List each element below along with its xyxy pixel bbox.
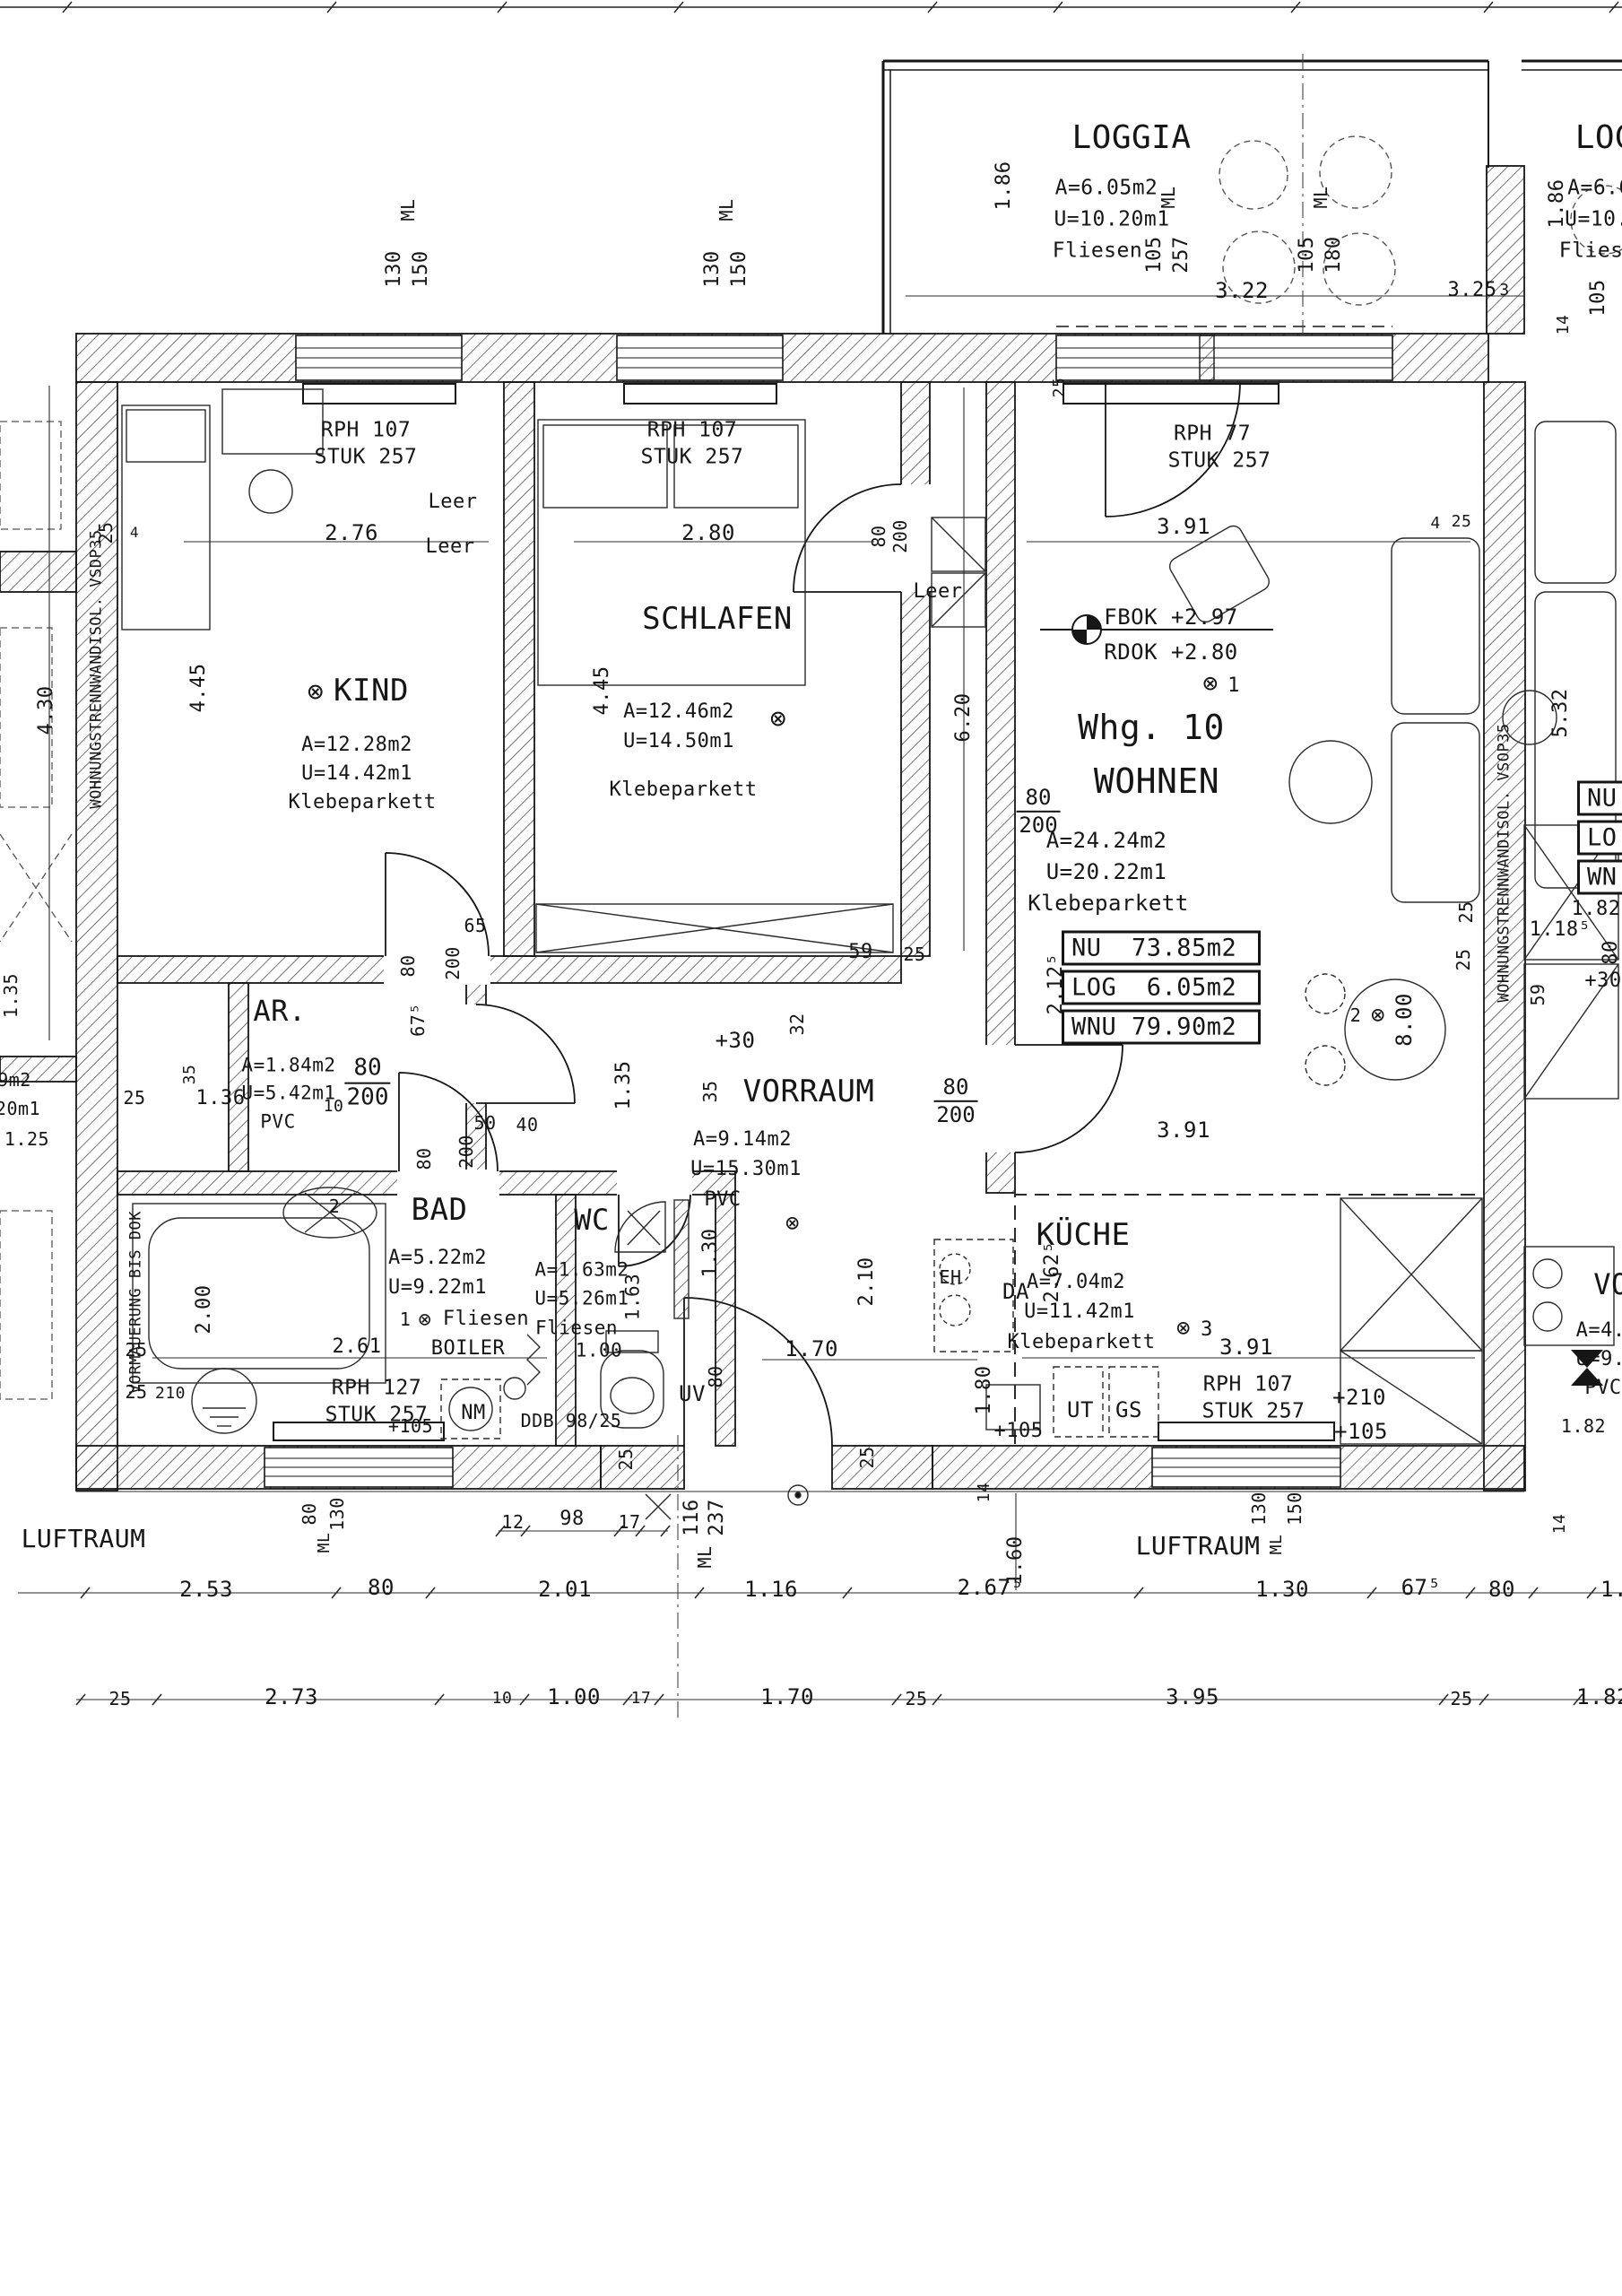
wohnen-title: WOHNEN — [1094, 764, 1219, 798]
dim-136: 1.36 — [196, 1089, 246, 1109]
row1-675: 67⁵ — [1401, 1577, 1442, 1598]
kind-symbol-icon: ⊗ — [308, 679, 325, 706]
wohnen-symbol-num: 1 — [1227, 676, 1240, 696]
dim-25-corr: 25 — [903, 945, 925, 963]
kind-title: KIND — [334, 675, 409, 706]
ar-title: AR. — [253, 996, 306, 1025]
dim-135-vert: 1.35 — [614, 1061, 634, 1110]
leftfrag-m2: 9m2 — [0, 1071, 31, 1089]
loggia2-perimeter: U=10. — [1565, 210, 1622, 230]
bad-area: A=5.22m2 — [388, 1248, 487, 1268]
dim-17: 17 — [618, 1513, 640, 1531]
schlafen-perimeter: U=14.50m1 — [623, 732, 734, 752]
dim-261: 2.61 — [333, 1337, 382, 1357]
dim-200-schlafen: 200 — [891, 519, 909, 553]
loggia-perimeter: U=10.20m1 — [1054, 210, 1169, 230]
row1-116: 1.16 — [744, 1578, 798, 1600]
wohnen-floor: Klebeparkett — [1028, 892, 1188, 914]
dim-2625: 2.62⁵ — [1043, 1241, 1063, 1303]
vorraum2-frag-floor: PVC — [1584, 1378, 1621, 1398]
dim-80-right: 80 — [1601, 940, 1621, 965]
win-schlafen-ml: ML — [717, 198, 735, 221]
leftfrag-125: 1.25 — [4, 1130, 49, 1148]
floorplan-sheet: ⊗KINDA=12.28m2U=14.42m1KlebeparkettSCHLA… — [0, 0, 1622, 2296]
leer-label-2: Leer — [426, 537, 475, 557]
dim-186-right: 1.86 — [1548, 179, 1567, 229]
vorraum2-frag-area: A=4.9 — [1576, 1321, 1622, 1341]
dim-200-ar2: 200 — [444, 946, 462, 980]
dim-675-ar: 67⁵ — [409, 1003, 427, 1037]
loggia2-floor: Fliesen — [1559, 241, 1622, 262]
door-loggia-w: 105 — [1145, 236, 1165, 273]
level-105-kueche-b: +105 — [1334, 1421, 1388, 1442]
dim-391-kueche: 3.91 — [1219, 1336, 1273, 1358]
row2-273: 2.73 — [265, 1686, 318, 1708]
dim-59: 59 — [848, 943, 873, 962]
eh-label: EH — [939, 1268, 961, 1286]
dim-532: 5.32 — [1551, 689, 1571, 738]
bad-symbol-icon: ⊗ — [419, 1309, 432, 1330]
loggia-floor: Fliesen — [1053, 241, 1142, 262]
win-loggia-ml: ML — [1312, 186, 1330, 208]
dim-3: 3 — [1499, 283, 1509, 299]
schlafen-symbol-icon: ⊗ — [770, 706, 787, 733]
bad-perimeter: U=9.22m1 — [388, 1278, 487, 1298]
dim-182-right: 1.82 — [1572, 900, 1621, 919]
row1-80a: 80 — [368, 1577, 395, 1598]
win-bottomleft-ml: ML — [317, 1533, 333, 1553]
leftfrag-135: 1.35 — [2, 973, 20, 1018]
wohnen-rdok: RDOK +2.80 — [1104, 641, 1238, 663]
dim-170: 1.70 — [785, 1338, 838, 1360]
schlafen-title: SCHLAFEN — [642, 604, 793, 634]
kueche-symbol-icon: ⊗ — [1176, 1317, 1191, 1340]
door-dim-vorraum: 80200 — [934, 1076, 978, 1126]
dim-100-wc: 1.00 — [576, 1342, 623, 1361]
leer-label-1: Leer — [429, 492, 478, 512]
vorraum-title: VORRAUM — [743, 1076, 875, 1107]
win-bottomleft-w: 80 — [300, 1502, 318, 1525]
dim-325: 3.25 — [1448, 281, 1497, 300]
kind-area: A=12.28m2 — [301, 735, 412, 755]
schlafen-floor: Klebeparkett — [610, 780, 758, 800]
level-105-kueche-a: +105 — [994, 1422, 1044, 1441]
kueche-floor: Klebeparkett — [1008, 1333, 1156, 1352]
dim-1185-right: 1.18⁵ — [1530, 920, 1592, 940]
level-210-kueche: +210 — [1332, 1387, 1386, 1408]
wall-text-right: WOHNUNGSTRENNWANDISOL. VSOP35 — [1497, 723, 1513, 1002]
vorraum2-frag-title: VO — [1593, 1270, 1622, 1299]
win-bottomright-h: 150 — [1286, 1492, 1304, 1526]
wc-perimeter: U=5.26m1 — [534, 1290, 629, 1309]
bad-floor: Fliesen — [443, 1309, 529, 1329]
dim-25-r1: 25 — [1457, 900, 1475, 923]
wc-area: A=1.63m2 — [534, 1261, 629, 1280]
dim-10-ar: 10 — [324, 1099, 344, 1115]
level-105-bad: +105 — [388, 1417, 433, 1435]
vorraum-symbol-icon: ⊗ — [785, 1212, 800, 1235]
dim-391-wohnen: 3.91 — [1157, 516, 1210, 537]
dim-186-left: 1.86 — [994, 161, 1014, 211]
vorraum-area: A=9.14m2 — [693, 1130, 792, 1150]
dim-130-vorraum: 1.30 — [701, 1229, 721, 1278]
row1-130: 1.30 — [1255, 1578, 1309, 1600]
door-loggia-ml: ML — [1159, 186, 1177, 208]
dim-14-b: 14 — [1552, 1514, 1568, 1535]
vorraum2-frag-perimeter: U=9.3 — [1576, 1350, 1622, 1370]
rph-kind: RPH 107 — [321, 421, 411, 441]
vorraum-floor: PVC — [704, 1190, 741, 1210]
loggia2-title: LOG — [1575, 122, 1622, 154]
win-right-14: 14 — [1556, 315, 1572, 335]
dim-4-w: 4 — [1430, 516, 1440, 532]
row2-182: 1.82 — [1576, 1686, 1622, 1708]
area-table-frag-wn: WN — [1577, 860, 1622, 895]
row2-25c: 25 — [1450, 1690, 1472, 1708]
nm-label: NM — [461, 1404, 486, 1423]
dim-280: 2.80 — [681, 522, 735, 544]
win-loggia-h: 180 — [1324, 236, 1344, 273]
loggia-title: LOGGIA — [1071, 122, 1191, 154]
stuk-schlafen: STUK 257 — [641, 448, 744, 468]
wc-floor: Fliesen — [535, 1319, 618, 1338]
win-loggia-w: 105 — [1297, 236, 1317, 273]
area-table-frag-lo: LO — [1577, 821, 1622, 856]
bad-symbol-num: 1 — [400, 1310, 412, 1328]
win-bottomleft-h: 130 — [328, 1497, 346, 1531]
wohnen-fbok: FBOK +2.97 — [1104, 606, 1238, 628]
wc-title: WC — [574, 1205, 610, 1234]
dim-65: 65 — [464, 917, 486, 935]
dim-2-bad: 2 — [329, 1197, 341, 1215]
rph-wohnen: RPH 77 — [1174, 424, 1251, 445]
wall-text-left2: VORMAUERUNG BIS DOK — [129, 1211, 144, 1394]
dining-symbol-icon: ⊗ — [1371, 1004, 1385, 1027]
row1-cut: 1. — [1600, 1578, 1622, 1600]
rph-bad: RPH 127 — [332, 1378, 421, 1399]
row2-25b: 25 — [905, 1690, 927, 1708]
dim-200-baddoor: 200 — [457, 1135, 475, 1169]
win-bottomright-w: 130 — [1250, 1492, 1268, 1526]
door-dim-ar: 80200 — [344, 1057, 390, 1111]
win-kind-h: 150 — [412, 250, 431, 287]
row1-253: 2.53 — [179, 1578, 233, 1600]
ut-label: UT — [1067, 1399, 1094, 1421]
wall-text-left: WOHNUNGSTRENNWANDISOL. VSDP35 — [90, 529, 105, 808]
wohnen-perimeter: U=20.22m1 — [1046, 861, 1167, 883]
dim-210-bad: 210 — [155, 1386, 186, 1402]
dim-59-right: 59 — [1529, 983, 1547, 1005]
gs-label: GS — [1115, 1399, 1142, 1421]
door-dim-wohnen: 80200 — [1017, 787, 1061, 837]
stuk-kind: STUK 257 — [315, 448, 418, 468]
dim-25-w1: 25 — [1052, 378, 1068, 398]
dim-80-ar2: 80 — [399, 954, 417, 977]
door-entry-w: 116 — [682, 1499, 702, 1535]
dim-276: 2.76 — [325, 522, 378, 544]
dim-35-ar: 35 — [182, 1065, 198, 1085]
ar-floor: PVC — [260, 1113, 295, 1132]
row2-100: 1.00 — [547, 1686, 601, 1708]
dim-163-wc: 1.63 — [624, 1274, 643, 1321]
leer-label-3: Leer — [914, 582, 963, 602]
vorraum-perimeter: U=15.30m1 — [690, 1160, 802, 1179]
win-right-105: 105 — [1589, 279, 1609, 316]
row2-25a: 25 — [108, 1690, 131, 1708]
area-table-nu: NU 73.85m2 — [1062, 931, 1261, 966]
dim-80-entry: 80 — [707, 1365, 724, 1387]
dim-200-bad: 2.00 — [195, 1285, 214, 1335]
schlafen-area: A=12.46m2 — [623, 702, 734, 722]
ar-perimeter: U=5.42m1 — [241, 1084, 335, 1103]
dim-430: 4.30 — [37, 686, 56, 735]
dim-80-baddoor: 80 — [415, 1147, 433, 1170]
win-schlafen-h: 150 — [730, 250, 750, 287]
dim-25-r2: 25 — [1454, 948, 1472, 970]
rph-kueche: RPH 107 — [1203, 1375, 1293, 1396]
dim-180-kueche: 1.80 — [975, 1366, 994, 1415]
row2-17: 17 — [631, 1691, 652, 1707]
area-table-log: LOG 6.05m2 — [1062, 970, 1261, 1005]
row2-395: 3.95 — [1166, 1686, 1219, 1708]
dim-800: 8.00 — [1393, 993, 1415, 1047]
win-kind-ml: ML — [399, 198, 417, 221]
dim-98: 98 — [559, 1509, 585, 1529]
loggia2-area: A=6.0 — [1567, 178, 1622, 199]
area-table-frag-nu: NU — [1577, 781, 1622, 816]
dim-80-schlafen: 80 — [870, 525, 888, 547]
dim-35-vert: 35 — [701, 1080, 719, 1102]
dim-32: 32 — [788, 1013, 806, 1035]
door-entry-ml: ML — [696, 1545, 714, 1568]
rph-schlafen: RPH 107 — [647, 421, 737, 441]
uv-label: UV — [679, 1383, 706, 1405]
loggia-area: A=6.05m2 — [1055, 178, 1158, 199]
dim-2125: 2.12⁵ — [1046, 953, 1066, 1015]
dim-25-v2: 25 — [617, 1448, 635, 1470]
dim-25-v3: 25 — [858, 1446, 876, 1468]
dim-25-w2: 25 — [1452, 514, 1472, 530]
dim-322: 3.22 — [1215, 280, 1269, 301]
stuk-kueche: STUK 257 — [1202, 1402, 1305, 1422]
dim-445-kind: 4.45 — [189, 664, 209, 713]
win-kind-w: 130 — [385, 250, 404, 287]
area-table-wnu: WNU 79.90m2 — [1062, 1010, 1261, 1045]
dim-14-a: 14 — [976, 1483, 993, 1503]
ar-area: A=1.84m2 — [241, 1057, 335, 1075]
kind-floor: Klebeparkett — [289, 793, 437, 813]
labels-layer: ⊗KINDA=12.28m2U=14.42m1KlebeparkettSCHLA… — [0, 0, 1622, 2296]
win-bottomright-ml: ML — [1269, 1535, 1285, 1555]
level-30-vorraum: +30 — [716, 1030, 756, 1051]
win-schlafen-w: 130 — [703, 250, 723, 287]
dining-num: 2 — [1350, 1006, 1362, 1024]
row2-10: 10 — [492, 1691, 513, 1707]
dim-391-wohnen-b: 3.91 — [1157, 1119, 1210, 1141]
leftfrag-m1: 20m1 — [0, 1100, 40, 1118]
dim-4-topleft: 4 — [130, 526, 139, 540]
da-label: DA — [1002, 1281, 1029, 1302]
row2-170: 1.70 — [760, 1686, 814, 1708]
kueche-perimeter: U=11.42m1 — [1024, 1302, 1135, 1322]
kind-perimeter: U=14.42m1 — [301, 764, 412, 784]
dim-210-vorraum: 2.10 — [857, 1257, 877, 1307]
boiler-label: BOILER — [431, 1339, 505, 1359]
ddb-label: DDB 98/25 — [521, 1412, 622, 1430]
level-30-right: +30 — [1584, 971, 1621, 991]
door-entry-h: 237 — [707, 1499, 727, 1535]
wohnen-symbol-icon: ⊗ — [1202, 671, 1218, 696]
kueche-symbol-num: 3 — [1201, 1320, 1213, 1340]
dim-25-ar: 25 — [123, 1089, 145, 1107]
dim-182-right2: 1.82 — [1561, 1417, 1606, 1435]
bad-title: BAD — [412, 1195, 468, 1225]
dim-620: 6.20 — [954, 693, 974, 743]
row1-80b: 80 — [1488, 1578, 1515, 1600]
luftraum-left: LUFTRAUM — [22, 1526, 146, 1552]
wohnen-whg: Whg. 10 — [1078, 710, 1225, 744]
dim-445-schlafen: 4.45 — [593, 666, 612, 716]
dim-40: 40 — [516, 1116, 538, 1134]
door-loggia-h: 257 — [1172, 236, 1192, 273]
dim-50: 50 — [473, 1114, 496, 1132]
dim-12: 12 — [501, 1513, 524, 1531]
luftraum-right: LUFTRAUM — [1136, 1534, 1261, 1559]
row1-201: 2.01 — [538, 1578, 592, 1600]
row1-2675: 2.67⁵ — [958, 1577, 1025, 1598]
stuk-wohnen: STUK 257 — [1168, 451, 1271, 472]
wohnen-area: A=24.24m2 — [1046, 830, 1167, 851]
